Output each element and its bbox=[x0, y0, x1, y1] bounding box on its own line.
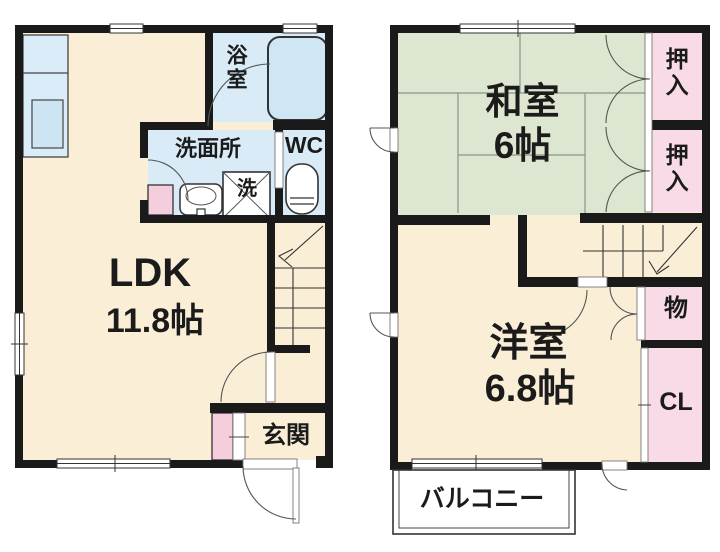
oshiire-divider-wall bbox=[645, 120, 702, 130]
oshiire-top-label: 押入 bbox=[663, 47, 687, 99]
ldk-size-label: 11.8帖 bbox=[80, 304, 230, 340]
bath-left-wall bbox=[205, 33, 213, 122]
window-1f-top-left bbox=[110, 24, 143, 33]
entrance-label: 玄関 bbox=[248, 423, 324, 448]
toilet bbox=[286, 164, 318, 214]
stairs-wall bbox=[267, 223, 275, 352]
entrance-door-arc bbox=[243, 466, 296, 519]
tatami-floor bbox=[398, 33, 645, 215]
washroom-label: 洗面所 bbox=[162, 137, 254, 160]
f2-left-door-gap-bottom bbox=[390, 313, 398, 337]
storage-cl-divider-wall bbox=[641, 340, 702, 348]
oshiire-bottom-label: 押入 bbox=[663, 143, 687, 195]
entrance-wall bbox=[210, 403, 333, 413]
cl-label: CL bbox=[653, 389, 699, 415]
entrance-door-leaf bbox=[293, 468, 299, 523]
youshitsu-door-gap bbox=[578, 277, 607, 287]
storage-label: 物 bbox=[660, 296, 692, 321]
washitsu-size-label: 6帖 bbox=[470, 127, 575, 166]
balcony-door-gap bbox=[602, 461, 627, 470]
window-1f-top-right bbox=[283, 24, 317, 33]
washitsu-bottom-wall bbox=[390, 215, 490, 225]
kitchen-sink bbox=[32, 100, 63, 148]
floorplan: LDK 11.8帖 浴室 洗面所 WC 洗 玄関 和室 6帖 押入 押入 洋室 … bbox=[0, 0, 720, 552]
balcony-label: バルコニー bbox=[402, 486, 562, 512]
f2-left-door-gap-top bbox=[390, 128, 398, 152]
washitsu-label: 和室 bbox=[470, 83, 575, 122]
youshitsu-label: 洋室 bbox=[476, 324, 581, 365]
entrance-door-gap bbox=[243, 459, 297, 469]
wc-label: WC bbox=[281, 133, 327, 157]
youshitsu-size-label: 6.8帖 bbox=[465, 370, 595, 410]
laundry-label: 洗 bbox=[232, 179, 262, 200]
storage-front-strip bbox=[637, 287, 645, 340]
oshiire-front-strip bbox=[645, 33, 652, 212]
hall-door-gap bbox=[266, 352, 275, 402]
washroom-cabinet bbox=[148, 185, 173, 215]
kitchen-counter bbox=[23, 35, 68, 157]
ldk-label: LDK bbox=[95, 252, 205, 294]
bath-label: 浴室 bbox=[224, 44, 246, 92]
bathtub bbox=[268, 37, 327, 120]
